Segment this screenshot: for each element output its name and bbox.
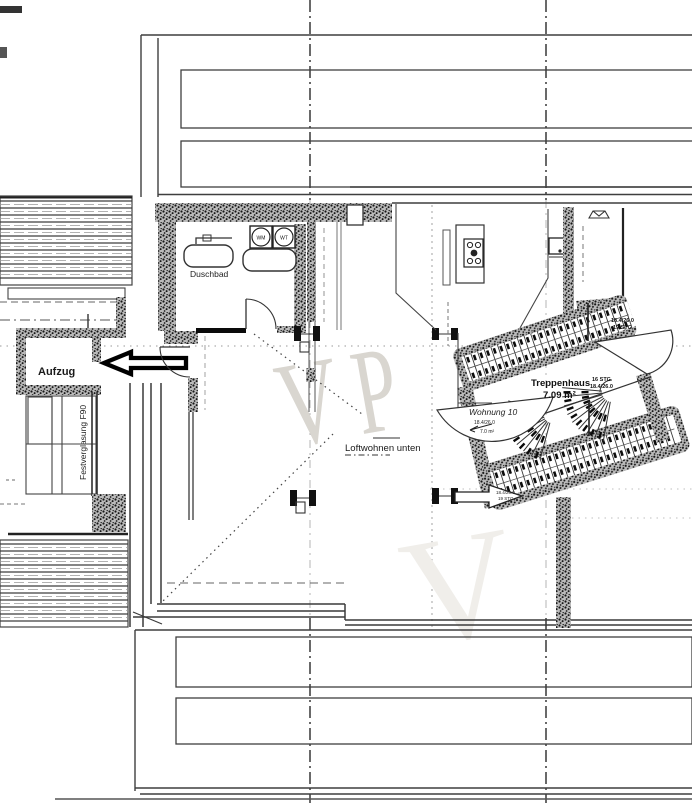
svg-text:7.09 m²: 7.09 m²	[543, 390, 576, 401]
svg-text:7.0 m²: 7.0 m²	[480, 429, 495, 435]
svg-text:19 STG: 19 STG	[613, 325, 632, 331]
svg-text:WM: WM	[257, 236, 266, 242]
svg-text:Aufzug: Aufzug	[38, 366, 75, 378]
svg-text:16 STG: 16 STG	[592, 377, 611, 383]
svg-text:WT: WT	[280, 236, 288, 242]
svg-text:Festverglasung F90: Festverglasung F90	[78, 405, 88, 480]
svg-text:Duschbad: Duschbad	[190, 269, 229, 279]
svg-text:Wohnung 10: Wohnung 10	[469, 407, 517, 417]
svg-text:18.4/26.0: 18.4/26.0	[474, 420, 495, 426]
svg-text:Loftwohnen unten: Loftwohnen unten	[345, 443, 421, 454]
svg-text:Treppenhaus: Treppenhaus	[531, 378, 590, 389]
svg-text:19 STG: 19 STG	[498, 496, 514, 501]
svg-text:18.4/26.0: 18.4/26.0	[611, 318, 634, 324]
svg-text:18.4/26.0: 18.4/26.0	[496, 490, 515, 495]
svg-text:18.4/26.0: 18.4/26.0	[590, 384, 613, 390]
